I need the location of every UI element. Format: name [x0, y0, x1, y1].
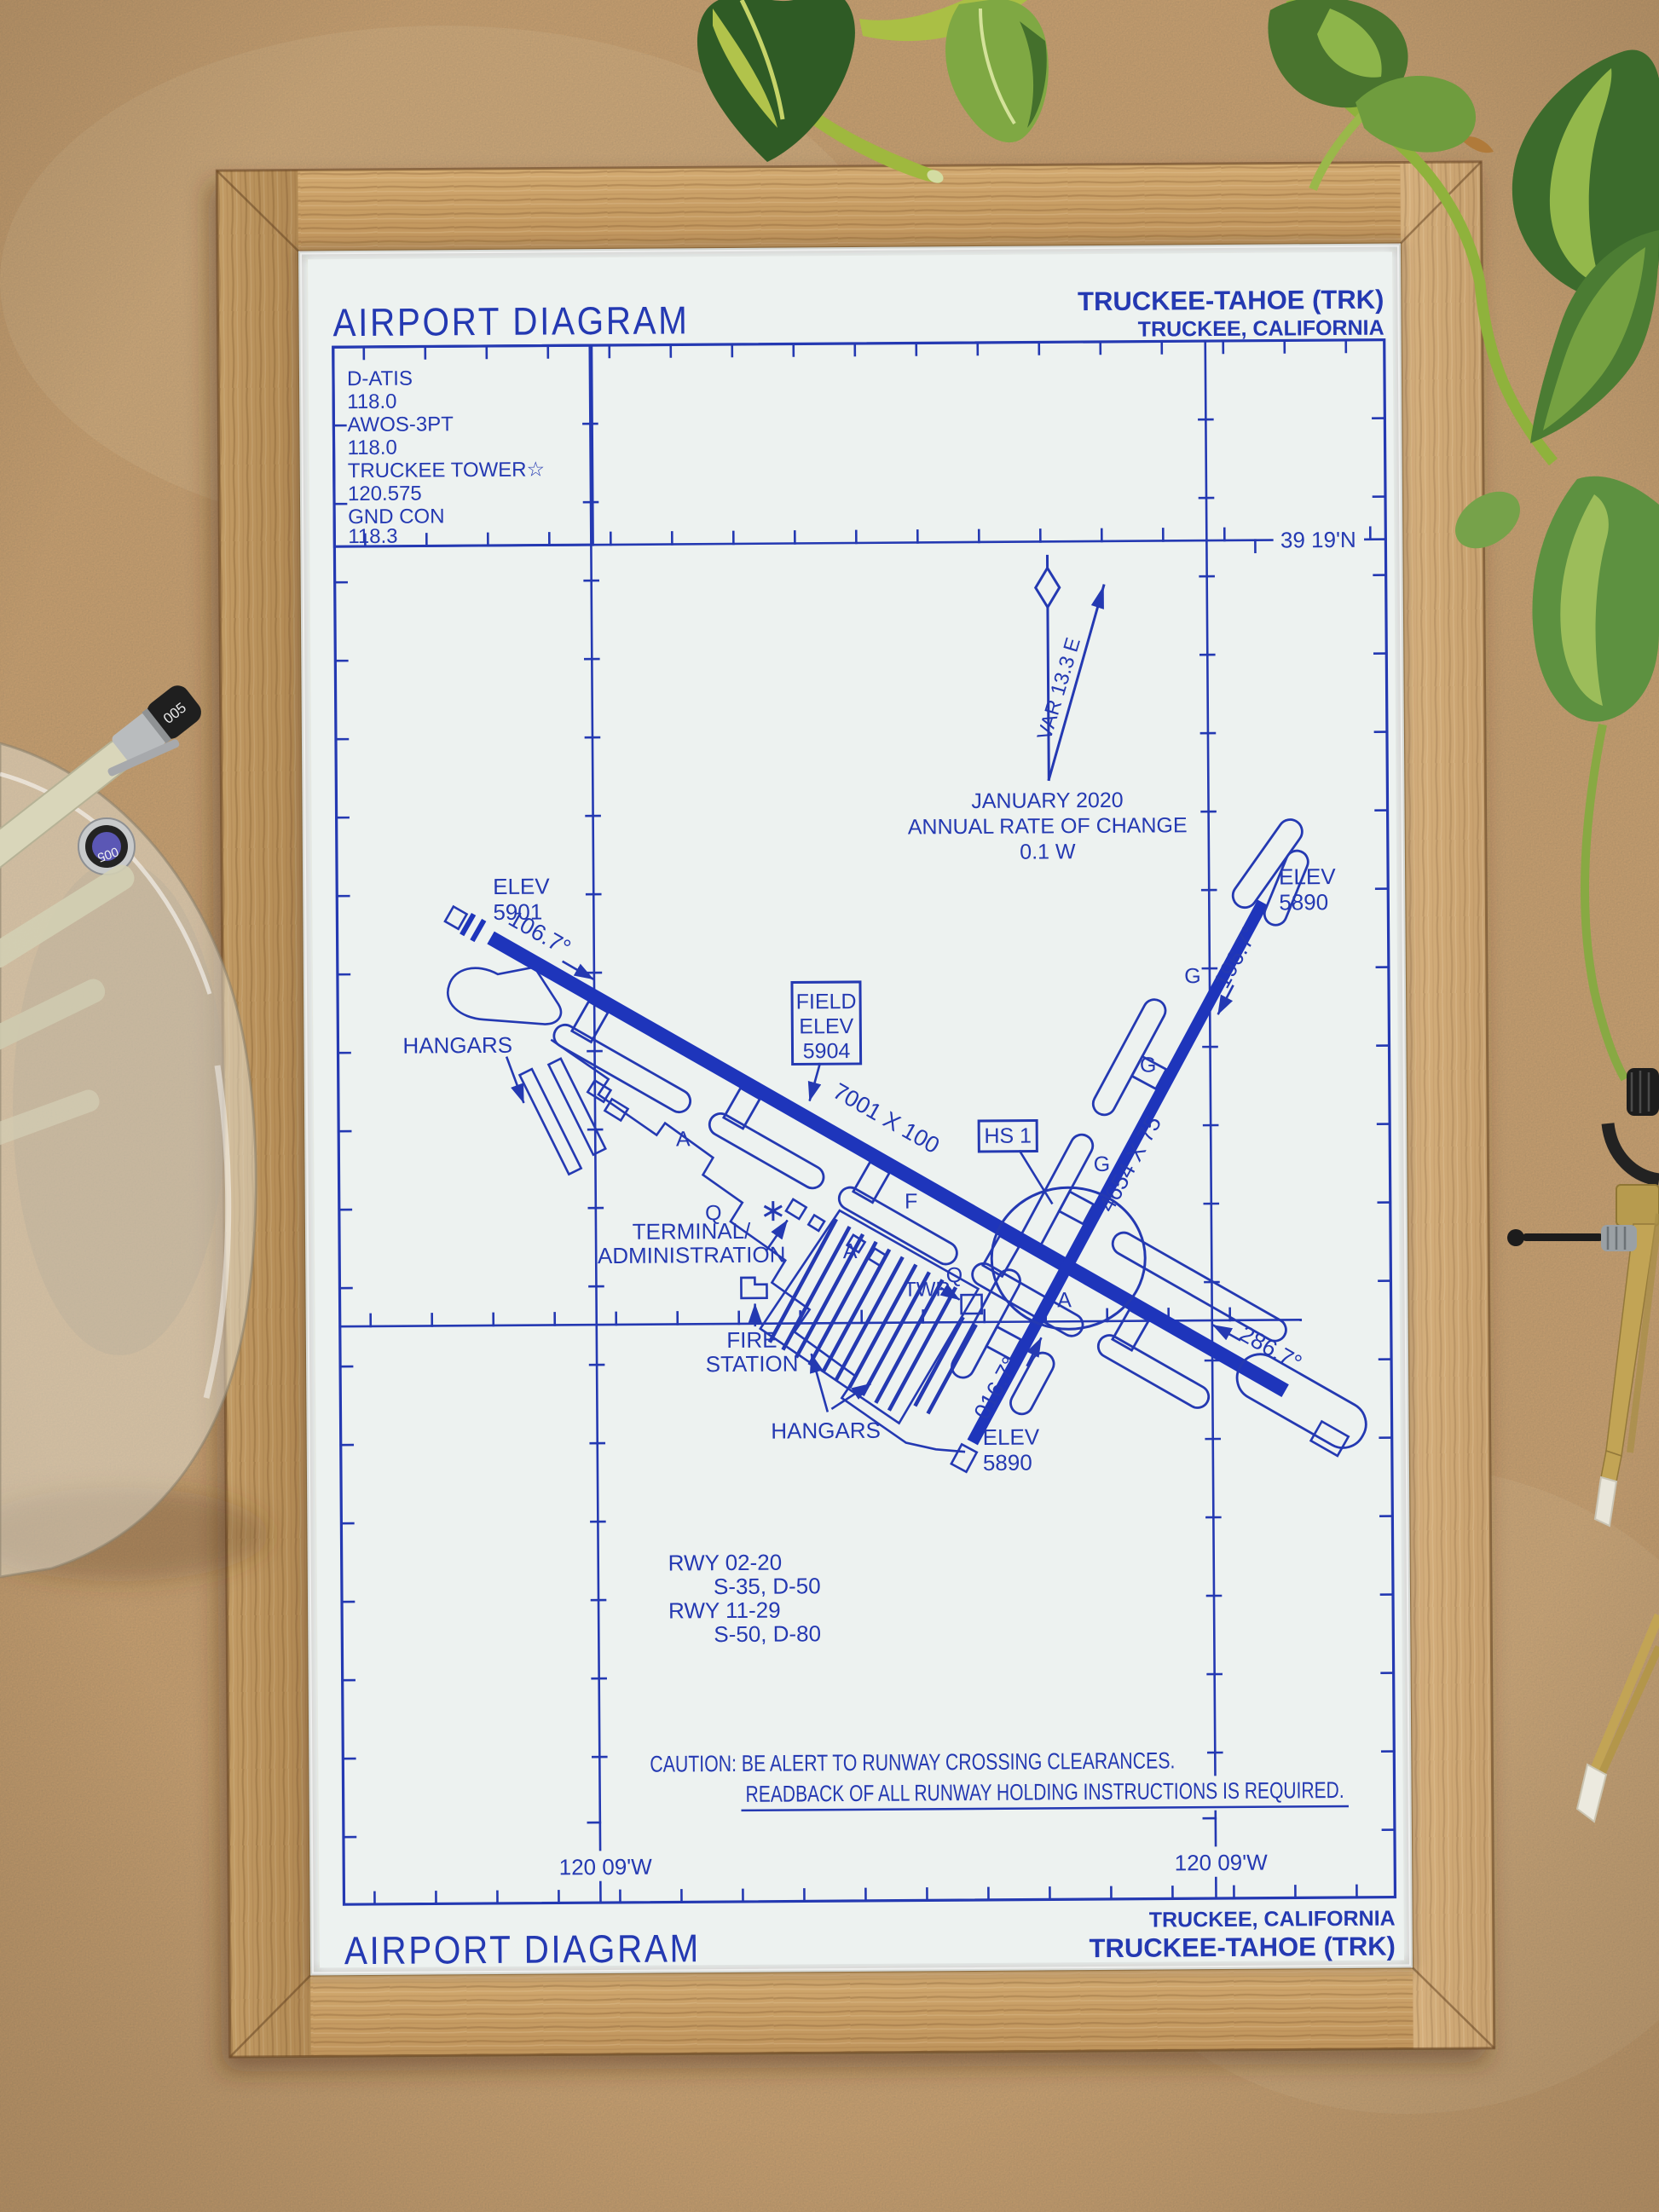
runway-data-line: S-35, D-50 — [714, 1573, 821, 1599]
footer-title: AIRPORT DIAGRAM — [344, 1926, 701, 1972]
elev-south-label: ELEV — [983, 1424, 1040, 1449]
taxiway-letter: G — [1184, 964, 1201, 988]
adjuster-ball — [1507, 1229, 1524, 1246]
caution-line2: READBACK OF ALL RUNWAY HOLDING INSTRUCTI… — [746, 1777, 1344, 1807]
photo-scene: AIRPORT DIAGRAM TRUCKEE-TAHOE (TRK) TRUC… — [0, 0, 1659, 2212]
header-city: TRUCKEE, CALIFORNIA — [1138, 316, 1384, 342]
comm-line: TRUCKEE TOWER☆ — [348, 459, 546, 483]
page-title: AIRPORT DIAGRAM — [332, 297, 689, 344]
field-elev-line2: ELEV — [799, 1014, 853, 1038]
taxiway-letter: A — [676, 1127, 691, 1151]
elev-north-label: ELEV — [1279, 863, 1336, 889]
scene-svg: AIRPORT DIAGRAM TRUCKEE-TAHOE (TRK) TRUC… — [0, 0, 1659, 2212]
adjuster-knurl — [1601, 1225, 1637, 1251]
field-elev-line3: 5904 — [803, 1039, 851, 1063]
fire-station-line1: FIRE — [726, 1327, 777, 1353]
longitude-label-left: 120 09'W — [559, 1854, 653, 1880]
comm-line: 120.575 — [348, 482, 422, 506]
comm-line: AWOS-3PT — [347, 413, 454, 436]
longitude-label-right: 120 09'W — [1175, 1850, 1269, 1876]
adjuster-rod — [1523, 1233, 1603, 1241]
comm-line: D-ATIS — [347, 367, 413, 391]
runway-data-line: RWY 11-29 — [668, 1597, 781, 1624]
footer-city: TRUCKEE, CALIFORNIA — [1149, 1907, 1396, 1932]
hangars-nw-label: HANGARS — [402, 1032, 512, 1059]
compass-hinge — [1616, 1185, 1659, 1226]
taxiway-letter: A — [1057, 1288, 1072, 1312]
comm-line: 118.0 — [347, 390, 396, 413]
taxiway-letter: A — [843, 1239, 858, 1263]
header-airport-name: TRUCKEE-TAHOE (TRK) — [1078, 285, 1384, 317]
fire-station-line2: STATION — [706, 1350, 799, 1377]
framed-print: AIRPORT DIAGRAM TRUCKEE-TAHOE (TRK) TRUC… — [217, 162, 1494, 2057]
runway-data-line: RWY 02-20 — [668, 1550, 783, 1576]
annual-rate-value: 0.1 W — [1020, 840, 1076, 863]
latitude-label: 39 19'N — [1280, 527, 1356, 553]
elev-west-label: ELEV — [493, 873, 550, 898]
taxiway-letter: F — [905, 1189, 917, 1213]
runway-data-line: S-50, D-80 — [714, 1620, 821, 1647]
taxiway-letter: Q — [705, 1201, 722, 1225]
taxiway-letter: G — [1094, 1152, 1111, 1176]
hotspot-label: HS 1 — [984, 1124, 1032, 1148]
taxiway-letter: G — [1140, 1054, 1157, 1077]
field-elev-line1: FIELD — [796, 990, 857, 1014]
terminal-label-line2: ADMINISTRATION — [598, 1242, 786, 1269]
comm-line: 118.3 — [348, 525, 397, 548]
elev-west-value: 5901 — [493, 899, 542, 925]
terminal-label-line1: TERMINAL/ — [633, 1218, 752, 1245]
variation-date: JANUARY 2020 — [971, 788, 1124, 813]
annual-rate-label: ANNUAL RATE OF CHANGE — [908, 813, 1188, 839]
elev-south-value: 5890 — [983, 1450, 1032, 1476]
comm-line: 118.0 — [347, 436, 396, 459]
hangars-s-label: HANGARS — [771, 1418, 881, 1444]
elev-north-value: 5890 — [1279, 889, 1328, 915]
taxiway-letter: Q — [946, 1263, 963, 1287]
footer-airport-name: TRUCKEE-TAHOE (TRK) — [1089, 1932, 1396, 1964]
caution-line1: CAUTION: BE ALERT TO RUNWAY CROSSING CLE… — [650, 1747, 1175, 1776]
